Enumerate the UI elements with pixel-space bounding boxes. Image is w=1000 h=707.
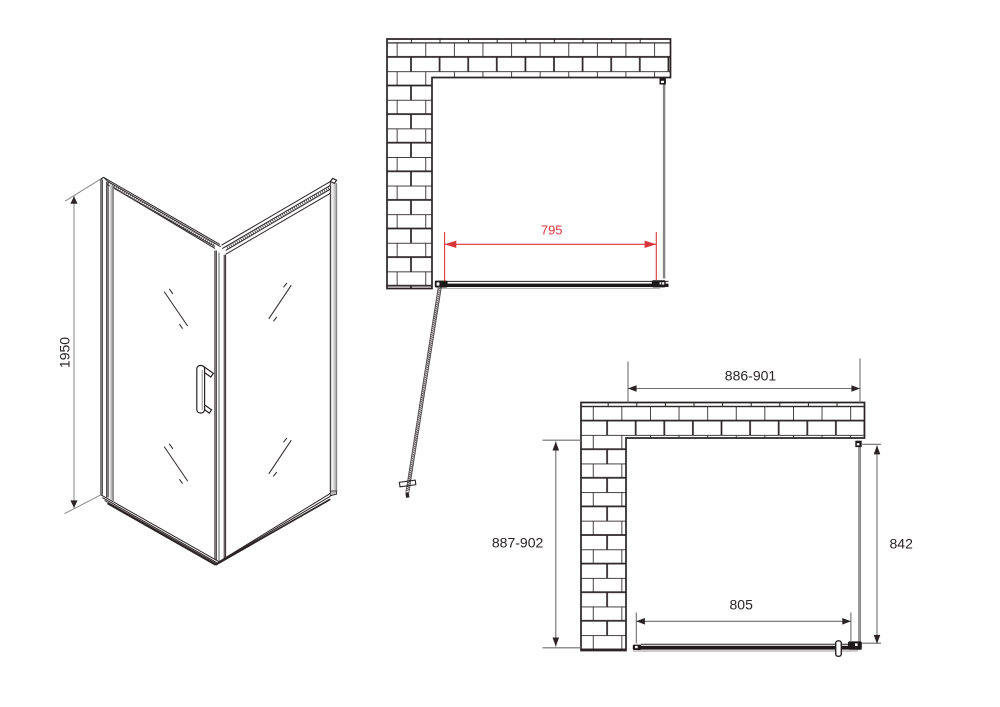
svg-text:886-901: 886-901 [725, 368, 777, 384]
svg-text:842: 842 [890, 536, 914, 552]
svg-text:1950: 1950 [57, 337, 73, 368]
svg-text:805: 805 [730, 597, 754, 613]
svg-text:795: 795 [541, 223, 563, 238]
svg-text:887-902: 887-902 [492, 535, 544, 551]
